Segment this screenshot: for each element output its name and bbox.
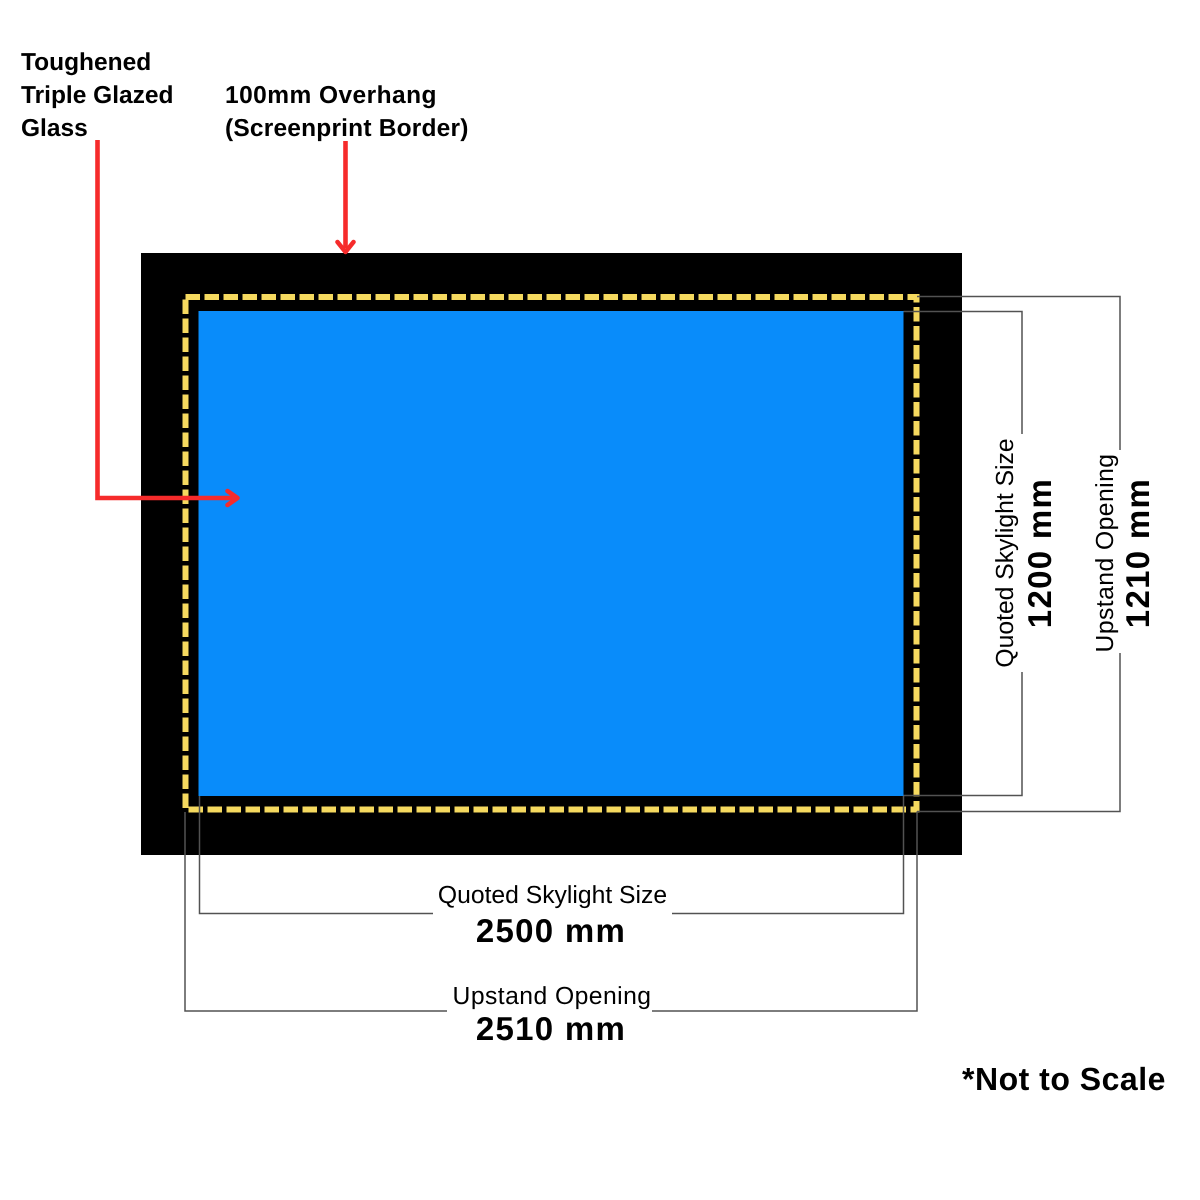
svg-text:Glass: Glass [21, 115, 88, 142]
svg-text:Toughened: Toughened [21, 49, 151, 76]
svg-text:(Screenprint Border): (Screenprint Border) [225, 115, 469, 142]
svg-text:1200 mm: 1200 mm [1021, 478, 1058, 628]
svg-text:*Not to Scale: *Not to Scale [962, 1061, 1166, 1097]
svg-text:Upstand Opening: Upstand Opening [453, 983, 652, 1010]
svg-text:Upstand Opening: Upstand Opening [1092, 454, 1119, 653]
svg-text:Quoted Skylight Size: Quoted Skylight Size [438, 882, 667, 909]
svg-text:2510 mm: 2510 mm [476, 1010, 626, 1047]
svg-text:Triple Glazed: Triple Glazed [21, 82, 174, 109]
svg-text:100mm Overhang: 100mm Overhang [225, 82, 437, 109]
svg-text:1210 mm: 1210 mm [1119, 478, 1156, 628]
svg-text:2500 mm: 2500 mm [476, 912, 626, 949]
svg-text:Quoted Skylight Size: Quoted Skylight Size [992, 438, 1019, 667]
